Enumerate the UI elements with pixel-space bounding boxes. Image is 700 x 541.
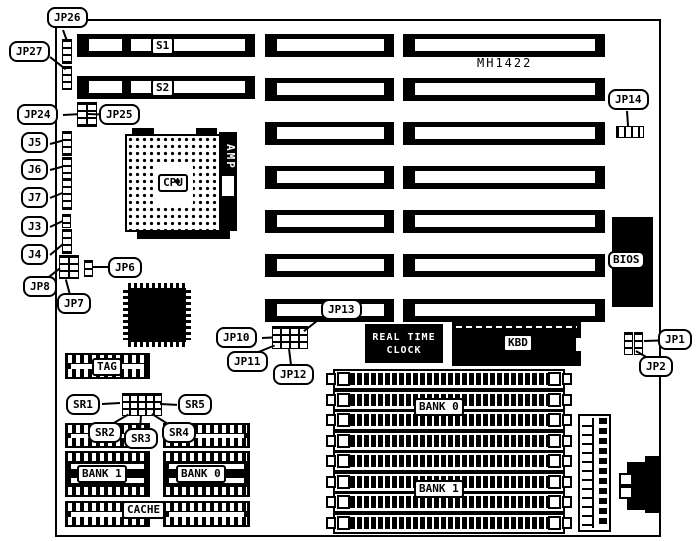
isa-slot: [403, 34, 605, 57]
callout-jp24: JP24: [17, 104, 58, 125]
callout-jp12: JP12: [273, 364, 314, 385]
cache-dip-socket: [163, 501, 250, 527]
kbd-label: KBD: [503, 334, 533, 352]
amp-window: [222, 176, 234, 196]
jumper-jp12: [290, 326, 299, 349]
cpu-die: CPU: [153, 162, 193, 204]
simm-slot: [333, 431, 565, 452]
rtc-label-line2: CLOCK: [386, 344, 421, 357]
jumper-j3: [62, 214, 71, 228]
isa-slot: [403, 210, 605, 233]
slot-s2-label: S2: [151, 79, 174, 97]
jumper-jp6: [84, 260, 93, 277]
jumper-sr: [122, 393, 130, 416]
amp-regulator: AMP: [219, 132, 237, 231]
dip-pins: [68, 487, 147, 495]
callout-jp2: JP2: [639, 356, 673, 377]
qfp-chipset: [128, 288, 186, 342]
callout-jp26: JP26: [47, 7, 88, 28]
dip-pins: [68, 453, 147, 461]
tag-label: TAG: [92, 358, 122, 376]
simm-slot: [333, 451, 565, 472]
callout-sr1: SR1: [66, 394, 100, 415]
socket-bottom-bar: [137, 230, 230, 239]
callout-jp1: JP1: [658, 329, 692, 350]
kbd-dash-line: [456, 326, 577, 328]
callout-jp25: JP25: [99, 104, 140, 125]
simm-bank0-label: BANK 0: [414, 398, 464, 416]
dip-pins: [166, 517, 247, 525]
real-time-clock-chip: REAL TIME CLOCK: [365, 324, 443, 363]
jumper-jp7: [69, 255, 79, 279]
board-model-text: MH1422: [477, 56, 532, 70]
callout-j7: J7: [21, 187, 48, 208]
callout-pointer-line: [87, 113, 99, 115]
isa-slot: [403, 254, 605, 277]
dip-pins: [166, 453, 247, 461]
callout-sr4: SR4: [162, 422, 196, 443]
dip-pins: [166, 503, 247, 511]
keyboard-din-connector: [645, 456, 660, 513]
callout-jp13: JP13: [321, 299, 362, 320]
jumper-jp24: [77, 102, 87, 127]
callout-jp10: JP10: [216, 327, 257, 348]
jumper-j5: [62, 131, 72, 156]
cache-bank1-label: BANK 1: [77, 465, 127, 483]
jumper-sr: [130, 393, 138, 416]
isa-slot: [265, 166, 394, 189]
jumper-jp11: [281, 326, 290, 349]
slot-s1-label: S1: [151, 37, 174, 55]
cache-label: CACHE: [122, 501, 165, 519]
power-connector: [578, 414, 611, 532]
simm-slot: [333, 513, 565, 534]
callout-j6: J6: [21, 159, 48, 180]
jumper-jp14: [616, 126, 644, 138]
bios-label: BIOS: [608, 251, 645, 269]
kbd-notch: [576, 338, 582, 351]
isa-slot: [403, 78, 605, 101]
callout-j4: J4: [21, 244, 48, 265]
slot-divider: [122, 38, 131, 53]
cpu-label: CPU: [158, 174, 188, 192]
isa-slot: [265, 210, 394, 233]
jumper-jp26: [62, 39, 72, 64]
callout-sr3: SR3: [124, 428, 158, 449]
dip-pins: [166, 487, 247, 495]
slot-divider: [122, 80, 131, 95]
simm-bank1-label: BANK 1: [414, 480, 464, 498]
callout-sr5: SR5: [178, 394, 212, 415]
simm-slot: [333, 369, 565, 390]
isa-slot: [265, 34, 394, 57]
callout-jp27: JP27: [9, 41, 50, 62]
cpu-socket: CPU: [125, 134, 221, 232]
isa-slot: [265, 78, 394, 101]
callout-sr2: SR2: [88, 422, 122, 443]
isa-slot: [403, 299, 605, 322]
callout-pointer-line: [92, 266, 108, 268]
jumper-j7: [62, 178, 72, 210]
callout-jp6: JP6: [108, 257, 142, 278]
jumper-sr: [138, 393, 146, 416]
amp-label: AMP: [219, 134, 237, 180]
cache-bank0-label: BANK 0: [176, 465, 226, 483]
jumper-j4: [62, 229, 72, 254]
jumper-jp1: [624, 332, 633, 355]
pin1-marker: [175, 179, 180, 184]
isa-slot: [265, 122, 394, 145]
callout-jp7: JP7: [57, 293, 91, 314]
motherboard-diagram: S1 S2 MH1422 CPU AMP TAG: [0, 0, 700, 541]
callout-jp11: JP11: [227, 351, 268, 372]
jumper-jp8: [59, 255, 69, 279]
isa-slot: [403, 166, 605, 189]
callout-j3: J3: [21, 216, 48, 237]
callout-j5: J5: [21, 132, 48, 153]
isa-slot: [265, 254, 394, 277]
din-plug: [619, 473, 633, 486]
callout-jp8: JP8: [23, 276, 57, 297]
isa-slot: [403, 122, 605, 145]
rtc-label-line1: REAL TIME: [372, 331, 435, 344]
callout-jp14: JP14: [608, 89, 649, 110]
din-plug: [619, 486, 633, 499]
